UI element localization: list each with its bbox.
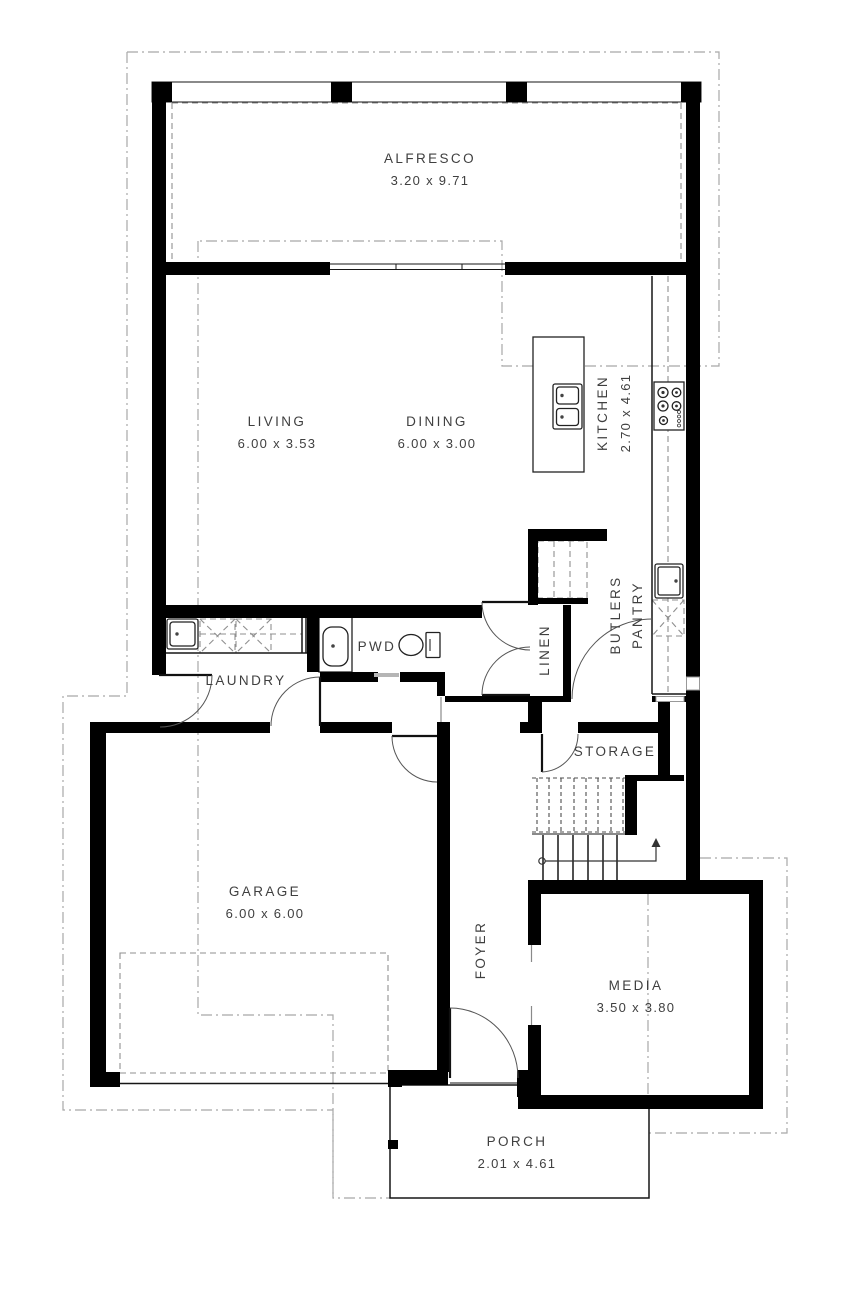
laundry-north-wall	[152, 605, 482, 618]
room-label-pwd: PWD	[358, 639, 397, 654]
top-wall-right	[505, 262, 700, 275]
media-east-wall	[749, 880, 763, 1109]
upper-floor-outline	[198, 241, 333, 1198]
storage-east-wall	[658, 702, 670, 777]
room-label-dining: DINING	[406, 414, 468, 429]
front-door	[450, 1008, 518, 1078]
room-label-media: MEDIA	[609, 978, 664, 993]
hall-west-wall	[437, 682, 445, 696]
media-west-wall-upper	[528, 880, 541, 945]
room-dims-media: 3.50 x 3.80	[597, 1000, 676, 1015]
roof-boundary-right	[127, 52, 719, 366]
alfresco-post	[331, 82, 352, 102]
pwd-south-wall	[320, 672, 378, 682]
laundry-exterior-door	[159, 675, 212, 727]
media-south-wall	[518, 1095, 763, 1109]
linen-double-doors	[482, 602, 530, 695]
floor-plan-page: ALFRESCO 3.20 x 9.71 LIVING 6.00 x 3.53 …	[0, 0, 844, 1312]
storage-door	[542, 734, 578, 772]
linen-east-wall	[563, 605, 571, 697]
stair-upper-flight-dashed	[532, 778, 625, 832]
stacker-door	[330, 264, 505, 270]
staircase	[532, 778, 661, 880]
room-label-garage: GARAGE	[229, 884, 301, 899]
room-dims-alfresco: 3.20 x 9.71	[391, 173, 470, 188]
floor-plan-drawing: ALFRESCO 3.20 x 9.71 LIVING 6.00 x 3.53 …	[0, 0, 844, 1312]
room-label-butlers-pantry-2: PANTRY	[630, 581, 645, 649]
butlers-north-wall	[528, 529, 607, 541]
alfresco-beam-outline	[152, 82, 701, 102]
dashed-lines	[120, 103, 684, 1073]
butlers-sink-icon	[655, 564, 683, 598]
foyer-south-wall	[388, 1070, 448, 1085]
linen-north-wall	[528, 598, 588, 604]
room-label-porch: PORCH	[487, 1134, 548, 1149]
laundry-cabinet-x	[200, 619, 271, 653]
room-label-storage: STORAGE	[574, 744, 657, 759]
garage-door-recess	[120, 953, 388, 1073]
room-label-alfresco: ALFRESCO	[384, 151, 476, 166]
laundry-sink-icon	[167, 619, 198, 649]
alfresco-post	[506, 82, 527, 102]
pwd-west-wall	[307, 618, 319, 672]
room-label-butlers-pantry-1: BUTLERS	[608, 575, 623, 654]
garage-west-wall	[90, 722, 106, 1087]
right-wall	[686, 262, 700, 882]
pwd-vanity-icon	[319, 617, 352, 672]
alfresco-wall-left	[152, 82, 166, 262]
media-roof-outline	[649, 858, 787, 1133]
storage-north-wall	[520, 722, 542, 733]
butlers-west-wall	[528, 529, 538, 605]
room-label-linen: LINEN	[537, 624, 552, 676]
pwd-sliding-door	[374, 673, 399, 677]
kitchen-bench-edge	[652, 276, 686, 694]
room-label-laundry: LAUNDRY	[205, 673, 286, 688]
stair-mid-wall	[625, 775, 637, 835]
foyer-west-wall	[437, 722, 450, 1072]
pwd-south-wall	[400, 672, 445, 682]
media-north-wall	[528, 880, 763, 894]
room-label-living: LIVING	[248, 414, 307, 429]
room-dims-dining: 6.00 x 3.00	[398, 436, 477, 451]
room-dims-porch: 2.01 x 4.61	[478, 1156, 557, 1171]
porch-post	[388, 1140, 398, 1149]
room-label-foyer: FOYER	[473, 921, 488, 980]
double-sink-icon	[553, 384, 582, 429]
cooktop-icon	[654, 382, 684, 430]
garage-south-wall	[90, 1072, 120, 1087]
hall-south-wall	[445, 696, 571, 702]
garage-north-wall	[320, 722, 392, 733]
top-wall-left	[152, 262, 330, 275]
room-dims-garage: 6.00 x 6.00	[226, 906, 305, 921]
stair-up-arrow-icon	[539, 838, 661, 864]
garage-entry-door	[392, 736, 437, 782]
media-west-wall-lower	[528, 1025, 541, 1095]
alfresco-wall-right	[686, 82, 700, 262]
room-dims-living: 6.00 x 3.53	[238, 436, 317, 451]
room-dims-kitchen: 2.70 x 4.61	[618, 374, 633, 453]
right-wall-window	[687, 677, 700, 690]
storage-north-wall	[578, 722, 660, 733]
pantry-shelves	[538, 541, 587, 598]
stair-lower-treads	[543, 835, 617, 880]
nook-vent	[656, 697, 684, 702]
room-label-kitchen: KITCHEN	[595, 375, 610, 451]
island-bench	[533, 337, 584, 472]
toilet-icon	[399, 633, 440, 658]
